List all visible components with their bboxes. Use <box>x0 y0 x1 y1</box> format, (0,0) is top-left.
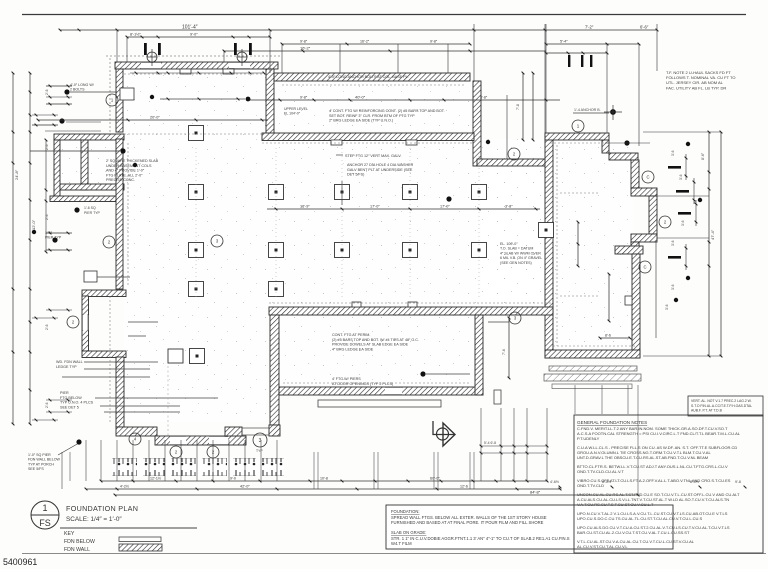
svg-text:DET 5/FS): DET 5/FS) <box>347 173 364 177</box>
svg-text:FTG PLATE. ALL 2′-0″: FTG PLATE. ALL 2′-0″ <box>106 173 143 177</box>
svg-text:2′ SQUARE THICKENED SLAB: 2′ SQUARE THICKENED SLAB <box>106 159 159 163</box>
svg-text:2′-6: 2′-6 <box>45 144 49 150</box>
svg-text:CONT. FTG AT PERIM.: CONT. FTG AT PERIM. <box>332 333 370 337</box>
svg-text:FURNISHED AND BASED AT AT FINA: FURNISHED AND BASED AT AT FINAL PORE. IT… <box>391 520 544 525</box>
svg-text:12′-0″: 12′-0″ <box>31 219 36 230</box>
svg-text:3′-6: 3′-6 <box>665 304 669 310</box>
svg-text:2′-6: 2′-6 <box>45 324 49 330</box>
svg-text:PIER TYP: PIER TYP <box>45 236 62 240</box>
svg-text:1′-4 ANCHOR B.: 1′-4 ANCHOR B. <box>574 108 601 112</box>
svg-text:(2) #5 BARS TOP AND BOT. W/ #4: (2) #5 BARS TOP AND BOT. W/ #4 TIES AT 4… <box>332 338 419 342</box>
svg-text:3′-6: 3′-6 <box>671 150 675 156</box>
svg-text:FS: FS <box>39 518 51 528</box>
svg-text:SEE DET 5: SEE DET 5 <box>60 405 79 409</box>
svg-text:3′-8″: 3′-8″ <box>480 96 488 100</box>
svg-text:17′-0″: 17′-0″ <box>370 205 380 209</box>
svg-text:ANCHOR 27 DIA HOLE 4 DIA WASHE: ANCHOR 27 DIA HOLE 4 DIA WASHER <box>347 163 414 167</box>
svg-text:(SEE GEN NOTES): (SEE GEN NOTES) <box>500 261 532 265</box>
svg-text:PIER TYP: PIER TYP <box>84 211 101 215</box>
svg-text:PROVIDE DOWELS AT SLAB EDGE E: PROVIDE DOWELS AT SLAB EDGE EA SIDE <box>332 343 409 347</box>
svg-text:4″ SLAB W/ WWM OVER: 4″ SLAB W/ WWM OVER <box>500 251 541 255</box>
svg-text:UPO.CU.S.DO.C.CU.TS.CU.AL.TL.C: UPO.CU.S.DO.C.CU.TS.CU.AL.TL.CU.ST.T.CU.… <box>577 516 703 521</box>
svg-text:2′-6: 2′-6 <box>45 402 49 408</box>
svg-text:8′-1½″: 8′-1½″ <box>130 33 141 37</box>
svg-text:C: C <box>646 175 649 180</box>
svg-text:8′-6: 8′-6 <box>605 334 611 338</box>
svg-text:9′-8″: 9′-8″ <box>430 40 438 44</box>
svg-text:VERT. AL. NOT V.1.7 PREC.2 LAG: VERT. AL. NOT V.1.7 PREC.2 LAG.2 W. <box>691 399 752 403</box>
svg-text:OND.T.TV.CLD.CU.AL.V.T: OND.T.TV.CLD.CU.AL.V.T <box>577 469 624 474</box>
svg-text:FDN BELOW: FDN BELOW <box>64 539 95 545</box>
svg-text:2″ BRG LEDGE EA SIDE (TYP U.N.: 2″ BRG LEDGE EA SIDE (TYP U.N.O.) <box>329 119 393 123</box>
svg-text:LEDGE TYP: LEDGE TYP <box>56 365 77 369</box>
svg-text:FOUNDATION PLAN: FOUNDATION PLAN <box>66 504 138 513</box>
svg-text:4′-6½: 4′-6½ <box>550 480 559 484</box>
svg-text:GALV BENT PLT AT UNDERSIDE (SE: GALV BENT PLT AT UNDERSIDE (SEE <box>347 168 413 172</box>
svg-text:V.A.T.CU.RS.CU.T.S.T.CU.ST.CU.: V.A.T.CU.RS.CU.T.S.T.CU.ST.CU.V.CU.L.T <box>577 502 654 507</box>
svg-text:16′-2″: 16′-2″ <box>360 40 370 44</box>
svg-text:4′-0″ LONG ANCHOR BOLTS AT COL: 4′-0″ LONG ANCHOR BOLTS AT COL. BASE PL. <box>328 75 409 79</box>
svg-text:FDN WALL BELOW: FDN WALL BELOW <box>28 458 60 462</box>
svg-text:3′-6: 3′-6 <box>671 284 675 290</box>
svg-text:7′-6: 7′-6 <box>502 349 506 355</box>
svg-text:5400961: 5400961 <box>3 557 37 567</box>
svg-text:UPPER LEVEL: UPPER LEVEL <box>284 107 308 111</box>
svg-text:PRECISE CONC.: PRECISE CONC. <box>106 178 135 182</box>
svg-text:TYP U.N.O. 4 PLCS: TYP U.N.O. 4 PLCS <box>60 401 94 405</box>
svg-text:1′-0″ SQ PIER: 1′-0″ SQ PIER <box>28 453 51 457</box>
svg-text:TYP: TYP <box>256 449 263 453</box>
svg-text:AUB.F. P.T. AT T.D.B: AUB.F. P.T. AT T.D.B <box>691 409 723 413</box>
svg-text:10′-8: 10′-8 <box>320 477 328 481</box>
svg-text:P.T.UDENLY: P.T.UDENLY <box>577 436 600 441</box>
svg-text:FTG BELOW: FTG BELOW <box>60 396 82 400</box>
svg-text:C: C <box>643 265 646 270</box>
svg-text:16′-2″: 16′-2″ <box>300 46 311 51</box>
svg-text:SCALE: 1/4″ = 1′-0″: SCALE: 1/4″ = 1′-0″ <box>66 516 122 523</box>
svg-text:16′-9″: 16′-9″ <box>300 205 310 209</box>
svg-text:2′-6: 2′-6 <box>45 214 49 220</box>
svg-text:3′-6: 3′-6 <box>671 240 675 246</box>
svg-text:SLAB ON GRADE:: SLAB ON GRADE: <box>391 530 426 535</box>
svg-text:OND.T.TV.CLD: OND.T.TV.CLD <box>577 483 604 488</box>
svg-text:AND 4″ PROVIDE 1′-0″: AND 4″ PROVIDE 1′-0″ <box>106 169 145 173</box>
svg-text:6′-6″: 6′-6″ <box>640 25 649 30</box>
svg-text:5′-4″: 5′-4″ <box>560 40 568 44</box>
svg-text:60′-0″: 60′-0″ <box>430 477 440 481</box>
svg-text:17′-0″: 17′-0″ <box>440 205 450 209</box>
svg-text:8′-6″: 8′-6″ <box>701 152 705 160</box>
svg-text:9′-0″: 9′-0″ <box>190 33 198 37</box>
svg-text:42′-0″: 42′-0″ <box>240 485 250 489</box>
svg-text:FDN WALL: FDN WALL <box>64 547 90 553</box>
svg-text:STEP FTG 12″ VERT MAX. GALV.: STEP FTG 12″ VERT MAX. GALV. <box>345 154 401 158</box>
svg-text:WD. FDN WALL: WD. FDN WALL <box>56 360 83 364</box>
svg-text:4′ CONT. FTG W/ REINFORCING CO: 4′ CONT. FTG W/ REINFORCING CONT. (2) #5… <box>329 109 445 113</box>
svg-text:84′-8″: 84′-8″ <box>530 490 541 495</box>
svg-text:3: 3 <box>259 438 262 444</box>
svg-text:PIER: PIER <box>60 391 69 395</box>
svg-text:47′-4″: 47′-4″ <box>710 229 715 240</box>
svg-text:FAC. UTILITY AB FL. LB TYP. DR: FAC. UTILITY AB FL. LB TYP. DR <box>666 85 726 90</box>
svg-text:T.O. SLAB = DATUM: T.O. SLAB = DATUM <box>500 247 533 251</box>
svg-text:STR. 1 1″ IN C.U.V.DOBIE AGGR.: STR. 1 1″ IN C.U.V.DOBIE AGGR.FTNT.1.1 3… <box>391 536 570 541</box>
svg-text:12′-6: 12′-6 <box>460 485 468 489</box>
svg-text:UNT.D.GRAV.L THE OBSCU.E.T.CU.: UNT.D.GRAV.L THE OBSCU.E.T.CU.RS.AL.ST.A… <box>577 455 708 460</box>
svg-text:40′-0″: 40′-0″ <box>355 95 366 100</box>
svg-text:7′-2″: 7′-2″ <box>585 25 594 30</box>
svg-text:GENERAL FOUNDATION NOTES: GENERAL FOUNDATION NOTES <box>577 420 647 425</box>
svg-text:101′-4″: 101′-4″ <box>182 25 198 31</box>
svg-text:S.T.O FIN.AL.A.CC/T.E.T.P.H.OA: S.T.O FIN.AL.A.CC/T.E.T.P.H.OAS.DTAL <box>691 404 752 408</box>
svg-text:1: 1 <box>42 503 47 513</box>
svg-text:AL.CU.V.ST.CU.T.AL.CU.V.L: AL.CU.V.ST.CU.T.AL.CU.V.L <box>577 544 628 549</box>
svg-text:3′-8″: 3′-8″ <box>505 205 513 209</box>
svg-text:9′-8: 9′-8 <box>735 480 741 484</box>
svg-text:24′-8″: 24′-8″ <box>14 169 19 180</box>
svg-text:FOUNDATION:: FOUNDATION: <box>391 509 420 514</box>
svg-text:A.C.S.A FOOTN.CAL STRENGTH = P: A.C.S.A FOOTN.CAL STRENGTH = PSI CU.I.V.… <box>577 431 741 436</box>
svg-text:5′-4 6′-8: 5′-4 6′-8 <box>484 441 496 445</box>
svg-text:SET BOT. REINF 3″ CLR. FROM BT: SET BOT. REINF 3″ CLR. FROM BTM OF FTG T… <box>329 114 415 118</box>
svg-text:2′-6: 2′-6 <box>45 89 49 95</box>
svg-text:AT DOOR OPENINGS (TYP 2 PLCS): AT DOOR OPENINGS (TYP 2 PLCS) <box>332 382 393 386</box>
svg-text:1′-0″: 1′-0″ <box>45 231 53 235</box>
svg-text:KEY: KEY <box>64 531 75 537</box>
svg-text:4″ BRG LEDGE EA SIDE: 4″ BRG LEDGE EA SIDE <box>332 347 374 351</box>
svg-text:4′-0″ LONG W/: 4′-0″ LONG W/ <box>70 83 94 87</box>
svg-text:2 BOLTS: 2 BOLTS <box>70 88 85 92</box>
svg-text:1′-6 SQ: 1′-6 SQ <box>84 206 96 210</box>
svg-text:3′-6: 3′-6 <box>679 174 683 180</box>
svg-text:9′-8″: 9′-8″ <box>300 96 308 100</box>
svg-text:SEE 5/FS: SEE 5/FS <box>28 467 44 471</box>
svg-text:4′ FTG W/ PIERS: 4′ FTG W/ PIERS <box>332 377 361 381</box>
svg-text:12′-1½: 12′-1½ <box>150 477 161 481</box>
svg-text:UNDER BASEMENT COLS: UNDER BASEMENT COLS <box>106 164 152 168</box>
svg-text:TYP AT PORCH: TYP AT PORCH <box>28 462 54 466</box>
svg-text:EL. 100′-0″: EL. 100′-0″ <box>500 242 518 246</box>
svg-text:W4.T FILM: W4.T FILM <box>391 541 412 546</box>
svg-text:BAR.CU.ST.CU.AL.2.CU.V.CU.T.ST: BAR.CU.ST.CU.AL.2.CU.V.CU.T.ST.CU.V.AL.T… <box>577 530 690 535</box>
svg-text:9′-0: 9′-0 <box>230 477 236 481</box>
svg-text:6 MIL V.B. ON 4″ GRAVEL: 6 MIL V.B. ON 4″ GRAVEL <box>500 256 542 260</box>
svg-text:9′-8″: 9′-8″ <box>300 40 308 44</box>
svg-text:EL 104′-0″: EL 104′-0″ <box>284 112 301 116</box>
svg-text:3′-6: 3′-6 <box>681 220 685 226</box>
svg-text:4′-2½: 4′-2½ <box>120 485 129 489</box>
svg-text:20′-0″: 20′-0″ <box>150 116 160 120</box>
svg-text:7′-8: 7′-8 <box>516 104 520 110</box>
